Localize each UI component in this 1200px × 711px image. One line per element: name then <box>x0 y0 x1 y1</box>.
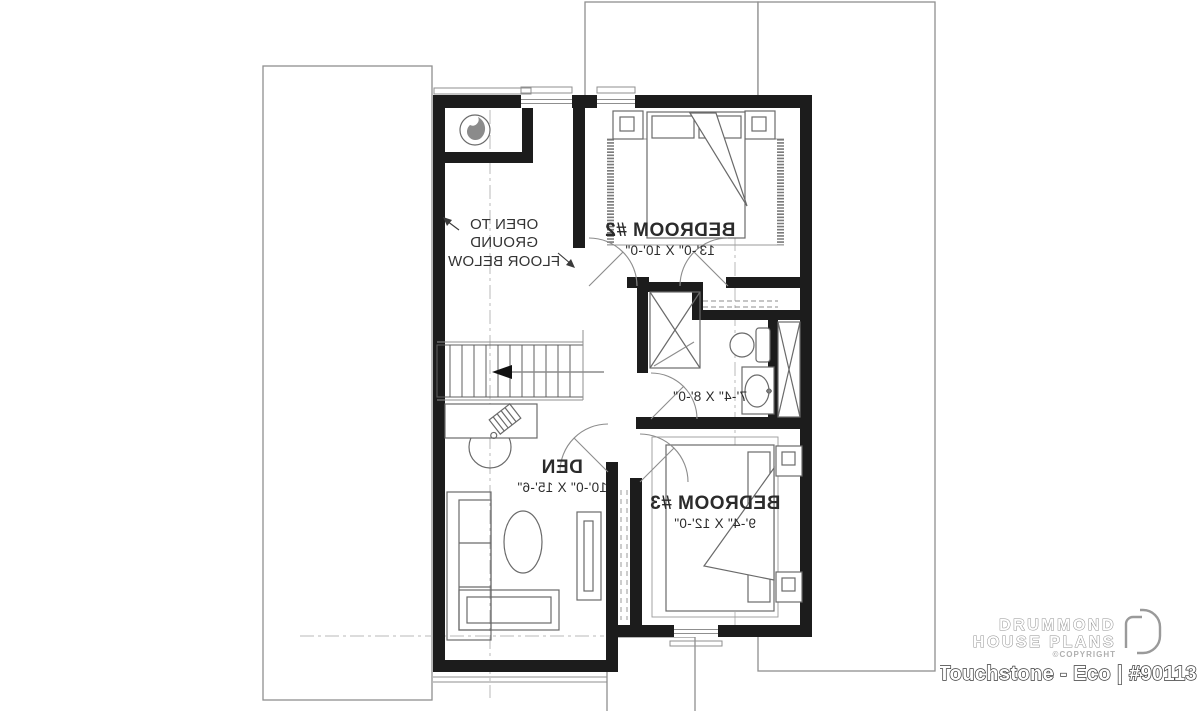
wall-left <box>433 95 445 672</box>
brand-name-line1: DRUMMOND <box>999 617 1116 634</box>
wall-closet-top-left-bottom <box>437 152 533 163</box>
label-bedroom3: BEDROOM #3 9'-4" X 12'-0" <box>630 494 800 531</box>
wall-right <box>800 95 812 637</box>
window-top-a <box>521 95 572 108</box>
window-top-b <box>597 95 635 108</box>
label-den: DEN 10'-0" X 15'-6" <box>497 458 627 495</box>
wall-bedroom2-south-b <box>726 277 812 288</box>
wall-step <box>606 625 618 672</box>
open-note-line2: FLOOR BELOW <box>437 253 571 271</box>
nightstand <box>613 111 643 139</box>
brand-name-line2: HOUSE PLANS <box>973 634 1116 651</box>
plan-title: Touchstone - Eco | #90113 <box>940 663 1197 685</box>
wall-closet-top-left-right <box>522 108 533 163</box>
room-dims-bedroom2: 13'-0" X 10'-0" <box>580 243 760 258</box>
room-name-den: DEN <box>497 458 627 478</box>
label-bathroom: 7'-4" X 8'-0" <box>655 387 765 404</box>
copyright-text: ©COPYRIGHT <box>1053 650 1116 659</box>
wall-linen-closet-left <box>637 282 648 373</box>
nightstand <box>745 111 775 139</box>
roof-edge-top-left <box>434 88 531 94</box>
wall-bottom-den <box>433 660 618 672</box>
nightstand <box>776 446 802 476</box>
room-dims-bathroom: 7'-4" X 8'-0" <box>655 389 765 404</box>
window-bedroom3 <box>674 625 718 637</box>
roof-outline-bottom-middle <box>607 637 695 711</box>
toilet-icon <box>730 333 754 357</box>
roof-outline-top-middle <box>585 2 758 100</box>
room-dims-bedroom3: 9'-4" X 12'-0" <box>630 516 800 531</box>
wall-bath-north <box>703 310 800 320</box>
open-note-line1: OPEN TO GROUND <box>437 216 571 253</box>
room-dims-den: 10'-0" X 15'-6" <box>497 480 627 495</box>
room-name-bedroom3: BEDROOM #3 <box>630 494 800 514</box>
branding-svg: DRUMMOND HOUSE PLANS ©COPYRIGHT Touchsto… <box>940 596 1200 696</box>
floor-plan-image: OPEN TO GROUND FLOOR BELOW BEDROOM #2 13… <box>0 0 1200 711</box>
room-name-bedroom2: BEDROOM #2 <box>580 221 760 241</box>
wall-bath-south <box>636 417 812 429</box>
label-open-to-below: OPEN TO GROUND FLOOR BELOW <box>437 216 571 271</box>
branding-block: DRUMMOND HOUSE PLANS ©COPYRIGHT Touchsto… <box>940 596 1200 696</box>
drummond-logo-icon <box>1126 610 1160 653</box>
nightstand <box>776 572 802 602</box>
label-bedroom2: BEDROOM #2 13'-0" X 10'-0" <box>580 221 760 258</box>
roof-outline-left <box>263 66 432 700</box>
toilet-tank <box>756 328 770 362</box>
